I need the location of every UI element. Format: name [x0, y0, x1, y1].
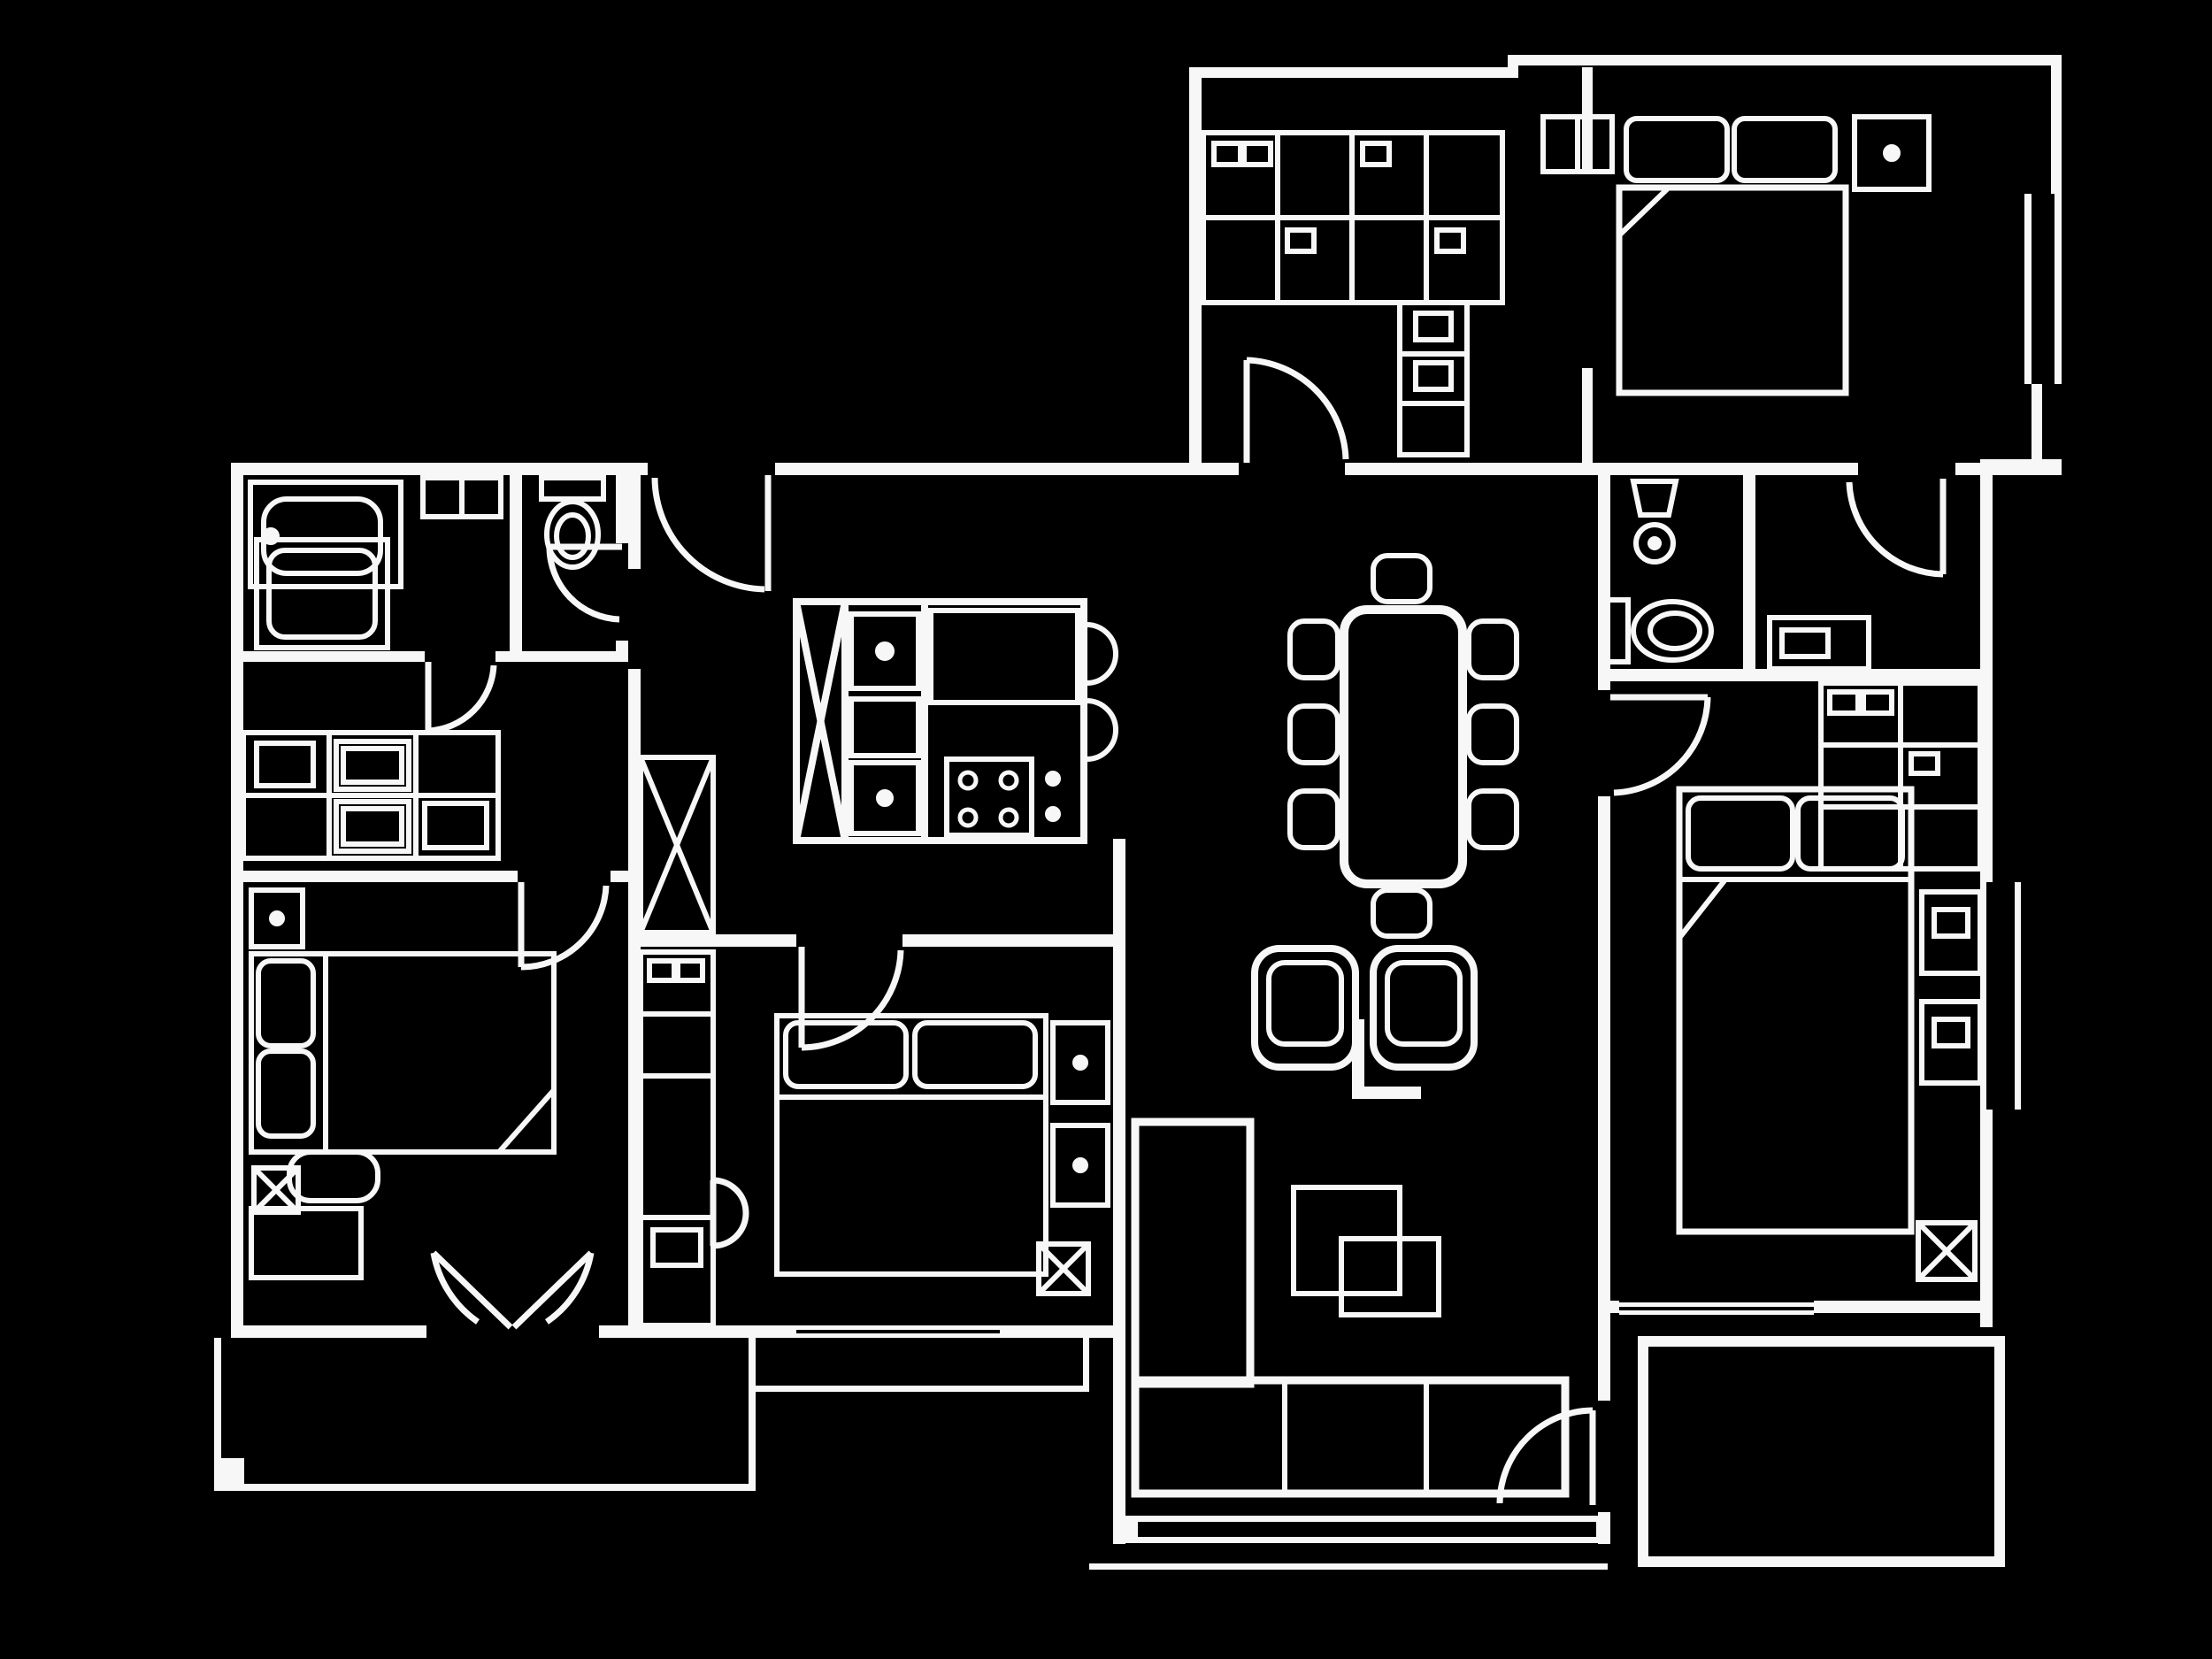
- knob-icon: [879, 793, 890, 803]
- lamp-icon: [272, 913, 282, 924]
- control-dot: [1048, 774, 1057, 783]
- floor-plan-drawing: [0, 0, 2212, 1659]
- oven-knob-icon: [879, 645, 891, 657]
- lamp-icon: [1075, 1057, 1086, 1068]
- lamp-icon: [1886, 147, 1898, 159]
- lamp-icon: [1075, 1160, 1086, 1171]
- shower-dot: [1650, 539, 1659, 548]
- floor-plan-page: [0, 0, 2212, 1659]
- control-dot: [1048, 810, 1057, 818]
